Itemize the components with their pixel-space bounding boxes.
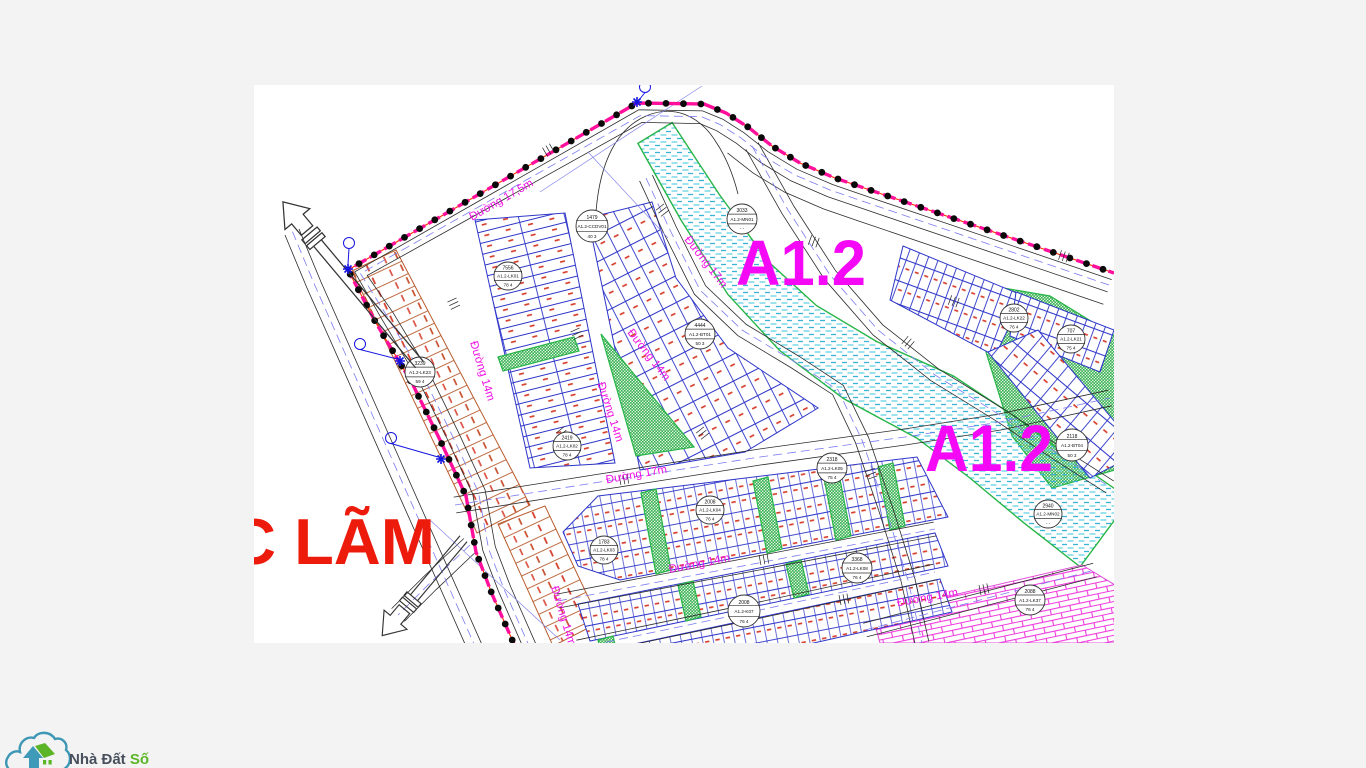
svg-text:78 4: 78 4 [563,453,572,458]
svg-text:2318: 2318 [826,457,837,463]
svg-text:A1.2-LK22: A1.2-LK22 [1003,316,1025,321]
svg-text:76 4: 76 4 [706,517,715,522]
svg-text:A1.2-LK03: A1.2-LK03 [593,548,615,553]
svg-text:75 4: 75 4 [1067,346,1076,351]
svg-text:A1.2-BT01: A1.2-BT01 [689,332,711,337]
svg-text:78 4: 78 4 [600,557,609,562]
svg-text:A1.2-LK01: A1.2-LK01 [497,274,519,279]
svg-text:76 4: 76 4 [1026,607,1035,612]
svg-text:A1.2-LK02: A1.2-LK02 [556,444,578,449]
svg-text:2088: 2088 [1024,589,1035,595]
svg-text:7556: 7556 [502,266,513,272]
svg-text:2118: 2118 [1067,434,1078,440]
svg-text:A1.2-MN02: A1.2-MN02 [1036,512,1060,517]
svg-text:A1.2-K07: A1.2-K07 [734,609,754,614]
svg-text:1479: 1479 [586,215,597,221]
svg-text:A1.2-LK21: A1.2-LK21 [1060,337,1082,342]
svg-text:A1.2-LK23: A1.2-LK23 [409,370,431,375]
svg-text:2940: 2940 [1042,504,1053,510]
svg-text:50 3: 50 3 [1068,453,1077,458]
svg-text:50 3: 50 3 [696,341,705,346]
svg-text:A1.2-LK37: A1.2-LK37 [1019,598,1041,603]
svg-text:2802: 2802 [1008,308,1019,314]
svg-text:40 3: 40 3 [588,234,597,239]
svg-text:C LÃM: C LÃM [229,505,435,578]
svg-text:A1.2-LK05: A1.2-LK05 [821,466,843,471]
svg-text:707: 707 [1067,329,1076,335]
svg-text:76 4: 76 4 [740,619,749,624]
svg-text:1783: 1783 [598,540,609,546]
svg-text:76 4: 76 4 [853,575,862,580]
svg-text:3033: 3033 [736,208,747,214]
svg-text:A1.2: A1.2 [736,227,866,299]
svg-text:- -: - - [1046,521,1051,526]
svg-text:A1.2-LK04: A1.2-LK04 [699,508,721,513]
svg-text:78 4: 78 4 [504,283,513,288]
svg-text:3239: 3239 [414,361,425,367]
svg-text:59 4: 59 4 [416,379,425,384]
svg-text:76 4: 76 4 [1010,325,1019,330]
svg-text:A1.2-CCDV01: A1.2-CCDV01 [577,224,607,229]
svg-text:4444: 4444 [694,323,705,329]
svg-text:A1.2-MN01: A1.2-MN01 [730,217,754,222]
svg-text:2008: 2008 [704,500,715,506]
svg-text:A1.2-BT04: A1.2-BT04 [1061,443,1083,448]
svg-text:3368: 3368 [851,557,862,563]
svg-text:75 4: 75 4 [828,475,837,480]
svg-text:Nhà Đất Số: Nhà Đất Số [69,751,149,768]
svg-text:A1.2: A1.2 [925,411,1053,485]
svg-text:2419: 2419 [561,436,572,442]
svg-text:A1.2-LK08: A1.2-LK08 [846,566,868,571]
svg-text:2008: 2008 [738,600,749,606]
